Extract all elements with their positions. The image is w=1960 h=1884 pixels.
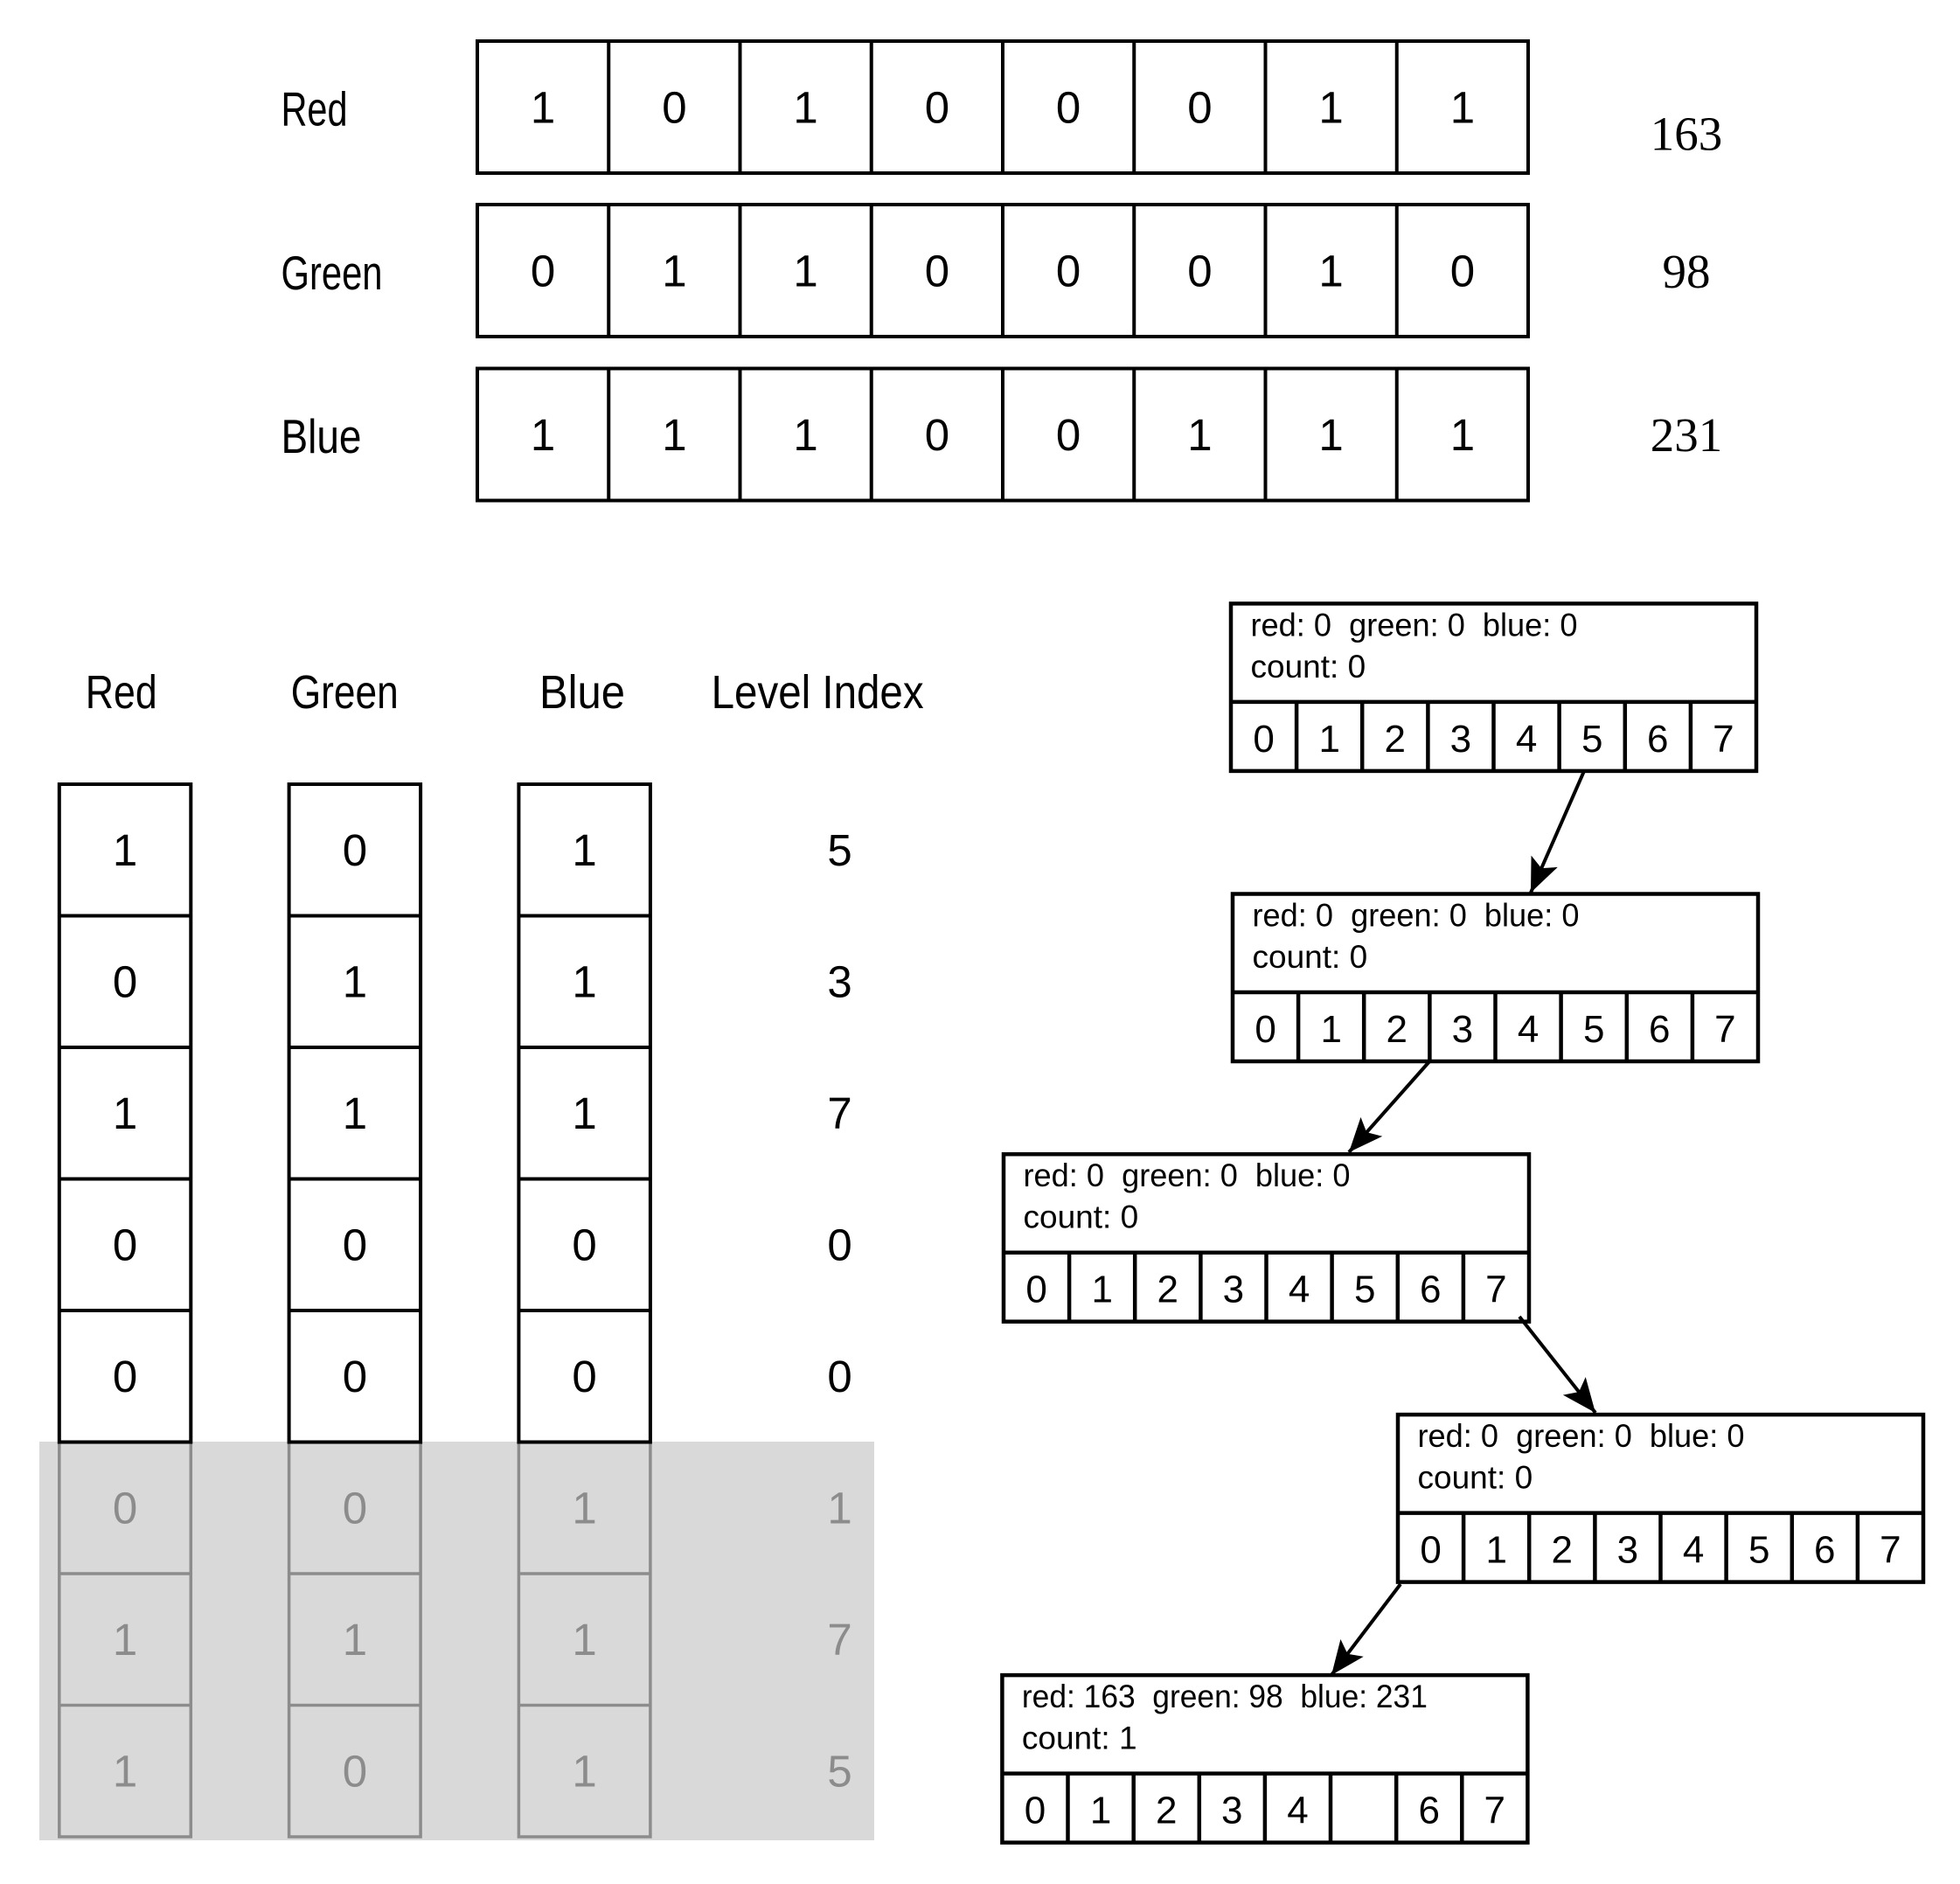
svg-text:1: 1 — [113, 825, 137, 875]
svg-text:3: 3 — [1223, 1269, 1244, 1311]
svg-text:2: 2 — [1385, 718, 1406, 761]
svg-text:0: 0 — [343, 825, 367, 875]
svg-text:count: 0: count: 0 — [1253, 939, 1368, 975]
svg-text:0: 0 — [572, 1220, 596, 1269]
svg-text:1: 1 — [572, 1483, 596, 1533]
svg-text:0: 0 — [343, 1483, 367, 1533]
svg-text:1: 1 — [572, 1746, 596, 1796]
svg-text:3: 3 — [1452, 1008, 1473, 1051]
svg-text:1: 1 — [343, 1088, 367, 1138]
svg-text:7: 7 — [1484, 1790, 1505, 1832]
svg-text:0: 0 — [925, 246, 949, 295]
svg-text:5: 5 — [1748, 1529, 1769, 1572]
svg-text:1: 1 — [1090, 1790, 1111, 1832]
svg-text:count: 0: count: 0 — [1418, 1460, 1533, 1496]
svg-text:4: 4 — [1287, 1790, 1308, 1832]
svg-text:0: 0 — [1025, 1269, 1046, 1311]
svg-text:Blue: Blue — [281, 409, 362, 463]
svg-text:231: 231 — [1651, 408, 1723, 462]
svg-text:163: 163 — [1651, 107, 1723, 160]
svg-text:red: 0 green: 0 blue: 0: red: 0 green: 0 blue: 0 — [1251, 607, 1578, 643]
svg-text:6: 6 — [1418, 1790, 1439, 1832]
svg-text:0: 0 — [1187, 246, 1212, 295]
svg-text:1: 1 — [343, 1615, 367, 1665]
svg-text:1: 1 — [1318, 82, 1343, 132]
svg-text:1: 1 — [572, 1615, 596, 1665]
svg-text:0: 0 — [113, 1352, 137, 1401]
svg-text:1: 1 — [662, 246, 686, 295]
svg-text:red: 0 green: 0 blue: 0: red: 0 green: 0 blue: 0 — [1253, 898, 1580, 934]
svg-text:1: 1 — [1318, 718, 1339, 761]
svg-text:0: 0 — [827, 1220, 851, 1269]
svg-text:7: 7 — [1714, 1008, 1735, 1051]
svg-text:6: 6 — [1814, 1529, 1835, 1572]
svg-text:7: 7 — [827, 1088, 851, 1138]
svg-text:1: 1 — [531, 82, 555, 132]
svg-text:0: 0 — [343, 1746, 367, 1796]
svg-text:7: 7 — [1485, 1269, 1506, 1311]
svg-text:1: 1 — [662, 410, 686, 460]
svg-text:3: 3 — [827, 956, 851, 1006]
svg-text:0: 0 — [113, 1220, 137, 1269]
svg-text:98: 98 — [1663, 245, 1711, 298]
svg-text:red: 0 green: 0 blue: 0: red: 0 green: 0 blue: 0 — [1024, 1158, 1351, 1193]
svg-text:0: 0 — [343, 1352, 367, 1401]
svg-text:count: 0: count: 0 — [1251, 649, 1366, 685]
svg-text:4: 4 — [1518, 1008, 1539, 1051]
svg-text:count: 0: count: 0 — [1024, 1199, 1139, 1235]
svg-text:7: 7 — [1713, 718, 1734, 761]
svg-text:6: 6 — [1420, 1269, 1441, 1311]
svg-text:1: 1 — [113, 1746, 137, 1796]
svg-text:1: 1 — [113, 1088, 137, 1138]
svg-text:2: 2 — [1552, 1529, 1573, 1572]
svg-text:5: 5 — [827, 1746, 851, 1796]
svg-text:5: 5 — [827, 825, 851, 875]
svg-text:6: 6 — [1647, 718, 1668, 761]
svg-text:0: 0 — [827, 1352, 851, 1401]
svg-text:1: 1 — [113, 1615, 137, 1665]
svg-text:4: 4 — [1683, 1529, 1704, 1572]
svg-text:0: 0 — [925, 410, 949, 460]
svg-text:2: 2 — [1156, 1790, 1177, 1832]
svg-text:count: 1: count: 1 — [1022, 1721, 1137, 1756]
svg-text:5: 5 — [1583, 1008, 1604, 1051]
svg-text:4: 4 — [1516, 718, 1537, 761]
svg-text:0: 0 — [1056, 82, 1081, 132]
svg-text:1: 1 — [1320, 1008, 1341, 1051]
svg-text:1: 1 — [1318, 246, 1343, 295]
svg-text:1: 1 — [1318, 410, 1343, 460]
svg-text:1: 1 — [572, 1088, 596, 1138]
svg-text:5: 5 — [1581, 718, 1602, 761]
svg-text:6: 6 — [1649, 1008, 1670, 1051]
svg-text:2: 2 — [1387, 1008, 1407, 1051]
svg-text:0: 0 — [1056, 410, 1081, 460]
svg-text:3: 3 — [1450, 718, 1471, 761]
svg-text:0: 0 — [531, 246, 555, 295]
svg-text:4: 4 — [1289, 1269, 1310, 1311]
svg-text:0: 0 — [1025, 1790, 1046, 1832]
svg-text:1: 1 — [1187, 410, 1212, 460]
svg-text:3: 3 — [1221, 1790, 1242, 1832]
svg-text:1: 1 — [793, 82, 817, 132]
svg-text:7: 7 — [827, 1615, 851, 1665]
svg-text:2: 2 — [1157, 1269, 1178, 1311]
svg-text:1: 1 — [1091, 1269, 1112, 1311]
svg-text:0: 0 — [1420, 1529, 1441, 1572]
svg-text:Red: Red — [86, 666, 157, 719]
svg-text:Green: Green — [281, 246, 383, 300]
svg-text:Red: Red — [281, 81, 348, 136]
svg-text:0: 0 — [113, 1483, 137, 1533]
svg-text:1: 1 — [572, 956, 596, 1006]
svg-text:0: 0 — [1253, 718, 1274, 761]
svg-text:1: 1 — [793, 410, 817, 460]
svg-text:1: 1 — [1450, 410, 1475, 460]
svg-text:Green: Green — [291, 666, 399, 719]
svg-text:Level Index: Level Index — [712, 666, 924, 719]
svg-text:7: 7 — [1880, 1529, 1901, 1572]
svg-text:0: 0 — [1056, 246, 1081, 295]
svg-text:0: 0 — [1255, 1008, 1275, 1051]
svg-text:0: 0 — [662, 82, 686, 132]
svg-text:0: 0 — [343, 1220, 367, 1269]
svg-text:red: 0 green: 0 blue: 0: red: 0 green: 0 blue: 0 — [1418, 1418, 1745, 1454]
svg-text:3: 3 — [1617, 1529, 1638, 1572]
svg-text:0: 0 — [113, 956, 137, 1006]
svg-text:5: 5 — [1354, 1269, 1375, 1311]
svg-text:1: 1 — [1485, 1529, 1506, 1572]
svg-text:1: 1 — [572, 825, 596, 875]
svg-text:0: 0 — [1450, 246, 1475, 295]
svg-text:Blue: Blue — [539, 666, 625, 719]
svg-text:1: 1 — [793, 246, 817, 295]
svg-text:red: 163 green: 98 blue: 231: red: 163 green: 98 blue: 231 — [1022, 1679, 1428, 1714]
svg-text:1: 1 — [531, 410, 555, 460]
svg-text:1: 1 — [343, 956, 367, 1006]
svg-text:1: 1 — [1450, 82, 1475, 132]
svg-text:1: 1 — [827, 1483, 851, 1533]
svg-text:0: 0 — [925, 82, 949, 132]
svg-text:0: 0 — [1187, 82, 1212, 132]
svg-text:0: 0 — [572, 1352, 596, 1401]
